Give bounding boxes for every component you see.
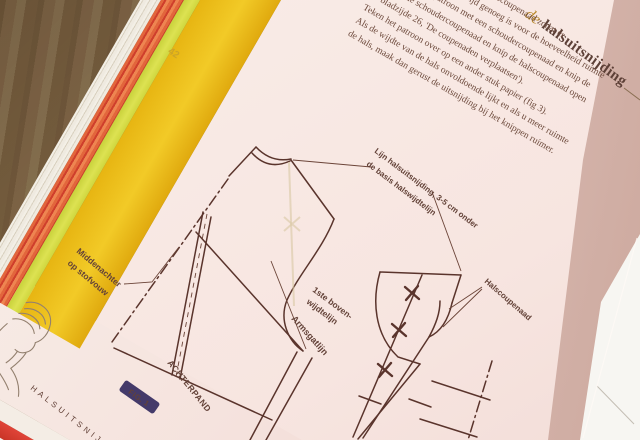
center-back-fold-line <box>112 179 228 342</box>
label-armhole: Armsgatlijn <box>290 314 331 357</box>
faint-grain-line <box>289 162 294 306</box>
placket-rail-right <box>180 217 211 379</box>
faint-table-line <box>597 386 634 424</box>
figure-badge: FIG. 1 <box>119 380 161 415</box>
front-neckline-curve <box>376 272 420 364</box>
label-neck-dart: Halscoupenaad <box>483 277 534 323</box>
back-top-edge <box>229 147 256 176</box>
side-slash-line2 <box>266 358 312 440</box>
dart-leg-right <box>363 337 429 438</box>
placket-dashes <box>176 214 207 377</box>
leader-neck-dart <box>443 287 482 327</box>
footer-text: HALSUITSNIJDING <box>29 383 132 440</box>
shoulder-seam <box>291 160 334 219</box>
front-cross-line2 <box>420 419 477 437</box>
front-right-edge <box>452 275 461 303</box>
front-top-edge <box>380 272 461 275</box>
back-neckline-lowered <box>252 153 290 165</box>
leader-neckline-to-back <box>293 160 371 167</box>
center-front-fold-line <box>468 361 492 440</box>
label-back-panel: ACHTERPAND <box>165 358 213 414</box>
width-line <box>196 232 303 351</box>
page-edge-highlight <box>583 238 637 438</box>
label-neckline-1: Lijn halsuitsnijding, 3-5 cm onder <box>373 146 480 230</box>
photo-of-book-page: 42 de halsuitsnijding gemaakt op basis v… <box>0 0 640 440</box>
page-content-overlay: de halsuitsnijding gemaakt op basis van … <box>0 0 640 440</box>
heading-rule <box>624 88 640 100</box>
balance-tick2 <box>409 399 431 407</box>
dart-leg-left <box>358 364 420 439</box>
dart-center-line <box>353 275 422 437</box>
leader-center-back <box>124 247 179 284</box>
body-paragraph: gemaakt op basis van een halscoupenaad z… <box>346 0 606 156</box>
dart-flap-outer <box>429 303 452 337</box>
back-neckline-original <box>256 147 291 160</box>
diagram-labels: Middenachter op stofvouw Lijn halsuitsni… <box>66 146 534 413</box>
